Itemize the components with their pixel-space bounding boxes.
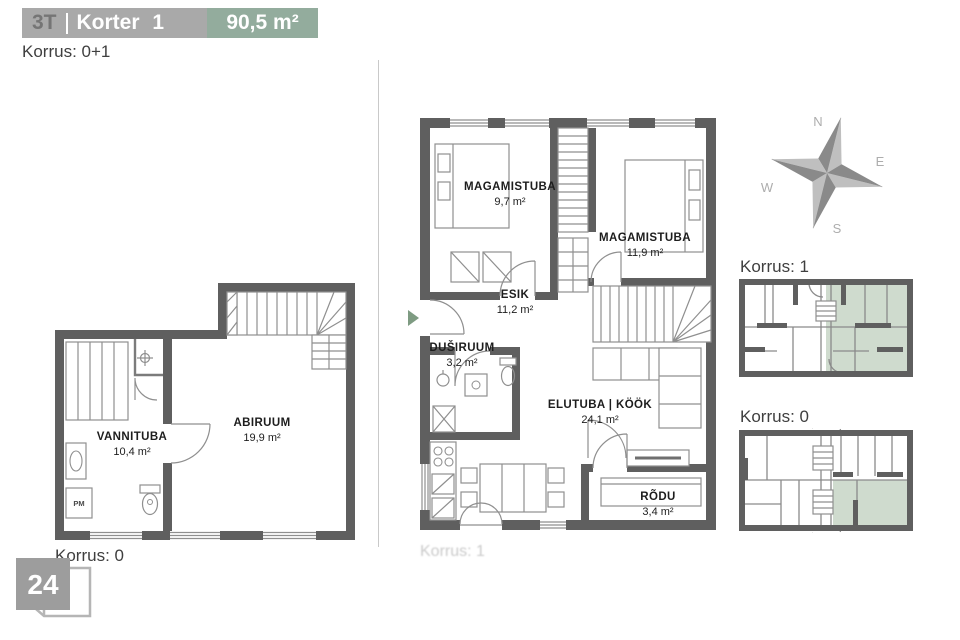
svg-text:E: E [876,154,885,169]
sink-icon [437,370,449,386]
stairs [227,292,346,369]
room-label-magamistuba-1: MAGAMISTUBA 9,7 m² [464,180,556,209]
unit-name-label: Korter 1 [77,11,165,35]
key-plan-korrus-1 [737,277,915,379]
room-label-dusiruum: DUŠIRUUM 3,2 m² [429,341,494,370]
kitchen-counter-icon [430,442,456,520]
title-bar-left: 3T Korter 1 [22,8,207,38]
entry-arrow-icon [408,310,419,326]
room-label-magamistuba-2: MAGAMISTUBA 11,9 m² [599,231,691,260]
floor-plan-korrus-0: PM [50,278,370,568]
highlight-region [833,480,907,527]
room-label-vannituba: VANNITUBA 10,4 m² [97,430,167,459]
dining-table-icon [461,464,564,512]
svg-text:S: S [833,221,842,236]
unit-type-label: 3T [32,11,57,35]
tv-bench-icon [627,450,689,466]
room-label-rodu: RÕDU 3,4 m² [640,490,675,519]
toilet-icon [140,485,160,515]
compass-star [758,104,896,242]
compass-rose-icon: N E W S [752,98,902,248]
stairs [558,128,588,292]
floor-plan-korrus-1 [405,112,725,544]
title-bar: 3T Korter 1 90,5 m² [22,8,318,38]
stairs-down [593,286,711,342]
page-number-text: 24 [27,569,59,600]
room-label-elutuba-kook: ELUTUBA | KÖÖK 24,1 m² [548,398,652,427]
wardrobe-icon [451,252,511,282]
unit-area-badge: 90,5 m² [207,8,318,38]
closet-icon [66,342,128,420]
room-label-abiruum: ABIRUUM 19,9 m² [233,416,290,445]
window [90,531,316,540]
shower-tray-icon [433,374,487,432]
section-divider [378,60,379,547]
svg-text:W: W [761,180,774,195]
key-plan-1-title: Korrus: 1 [740,257,809,277]
svg-text:N: N [813,114,822,129]
sink-icon [66,443,86,479]
floors-note: Korrus: 0+1 [22,42,110,62]
shower-icon [135,339,163,375]
key-plan-korrus-0 [737,428,915,533]
key-plan-2-title: Korrus: 0 [740,407,809,427]
room-label-esik: ESIK 11,2 m² [497,288,533,317]
page-number-badge: 24 [14,556,96,626]
toilet-icon [500,358,516,386]
title-divider [66,13,68,34]
washing-machine-icon: PM [66,488,92,518]
svg-text:PM: PM [73,499,84,508]
caption-korrus-1-faint: Korrus: 1 [420,543,485,561]
